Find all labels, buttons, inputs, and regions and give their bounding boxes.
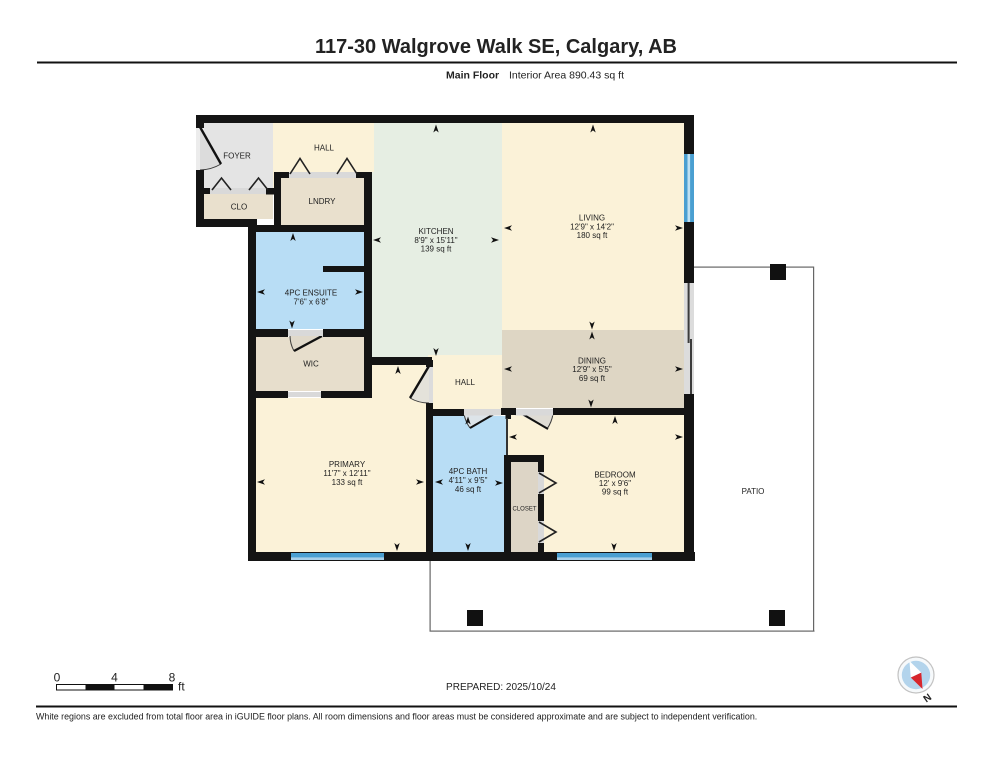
svg-text:46 sq ft: 46 sq ft	[455, 485, 482, 494]
svg-text:CLOSET: CLOSET	[512, 507, 536, 513]
svg-text:99 sq ft: 99 sq ft	[602, 488, 629, 497]
svg-text:4PC BATH: 4PC BATH	[449, 467, 488, 476]
svg-text:11'7" x 12'11": 11'7" x 12'11"	[323, 469, 370, 478]
svg-text:N: N	[921, 691, 933, 704]
svg-text:HALL: HALL	[455, 378, 476, 387]
svg-text:0: 0	[54, 671, 61, 685]
svg-text:PREPARED: 2025/10/24: PREPARED: 2025/10/24	[446, 682, 556, 693]
svg-text:Interior Area 890.43 sq ft: Interior Area 890.43 sq ft	[509, 70, 624, 82]
svg-text:7'6" x 6'8": 7'6" x 6'8"	[294, 298, 329, 307]
svg-text:8: 8	[169, 671, 176, 685]
svg-text:4: 4	[111, 671, 118, 685]
svg-text:ft: ft	[178, 680, 185, 694]
svg-text:CLO: CLO	[231, 203, 247, 212]
svg-text:LNDRY: LNDRY	[309, 197, 337, 206]
svg-text:139 sq ft: 139 sq ft	[421, 245, 452, 254]
svg-text:117-30 Walgrove Walk SE, Calga: 117-30 Walgrove Walk SE, Calgary, AB	[315, 36, 677, 58]
svg-text:White regions are excluded fro: White regions are excluded from total fl…	[36, 712, 757, 722]
svg-text:PATIO: PATIO	[742, 487, 765, 496]
svg-text:4'11" x 9'5": 4'11" x 9'5"	[449, 476, 488, 485]
svg-text:12'9" x 5'5": 12'9" x 5'5"	[572, 365, 612, 374]
svg-text:133 sq ft: 133 sq ft	[332, 478, 363, 487]
svg-text:4PC ENSUITE: 4PC ENSUITE	[285, 289, 337, 298]
svg-text:LIVING: LIVING	[579, 214, 605, 223]
svg-text:HALL: HALL	[314, 144, 335, 153]
svg-text:PRIMARY: PRIMARY	[329, 460, 366, 469]
svg-text:180 sq ft: 180 sq ft	[577, 231, 608, 240]
svg-text:69 sq ft: 69 sq ft	[579, 374, 606, 383]
svg-text:KITCHEN: KITCHEN	[418, 227, 453, 236]
svg-text:WIC: WIC	[303, 360, 319, 369]
svg-text:Main Floor: Main Floor	[446, 70, 499, 82]
svg-text:FOYER: FOYER	[223, 152, 251, 161]
